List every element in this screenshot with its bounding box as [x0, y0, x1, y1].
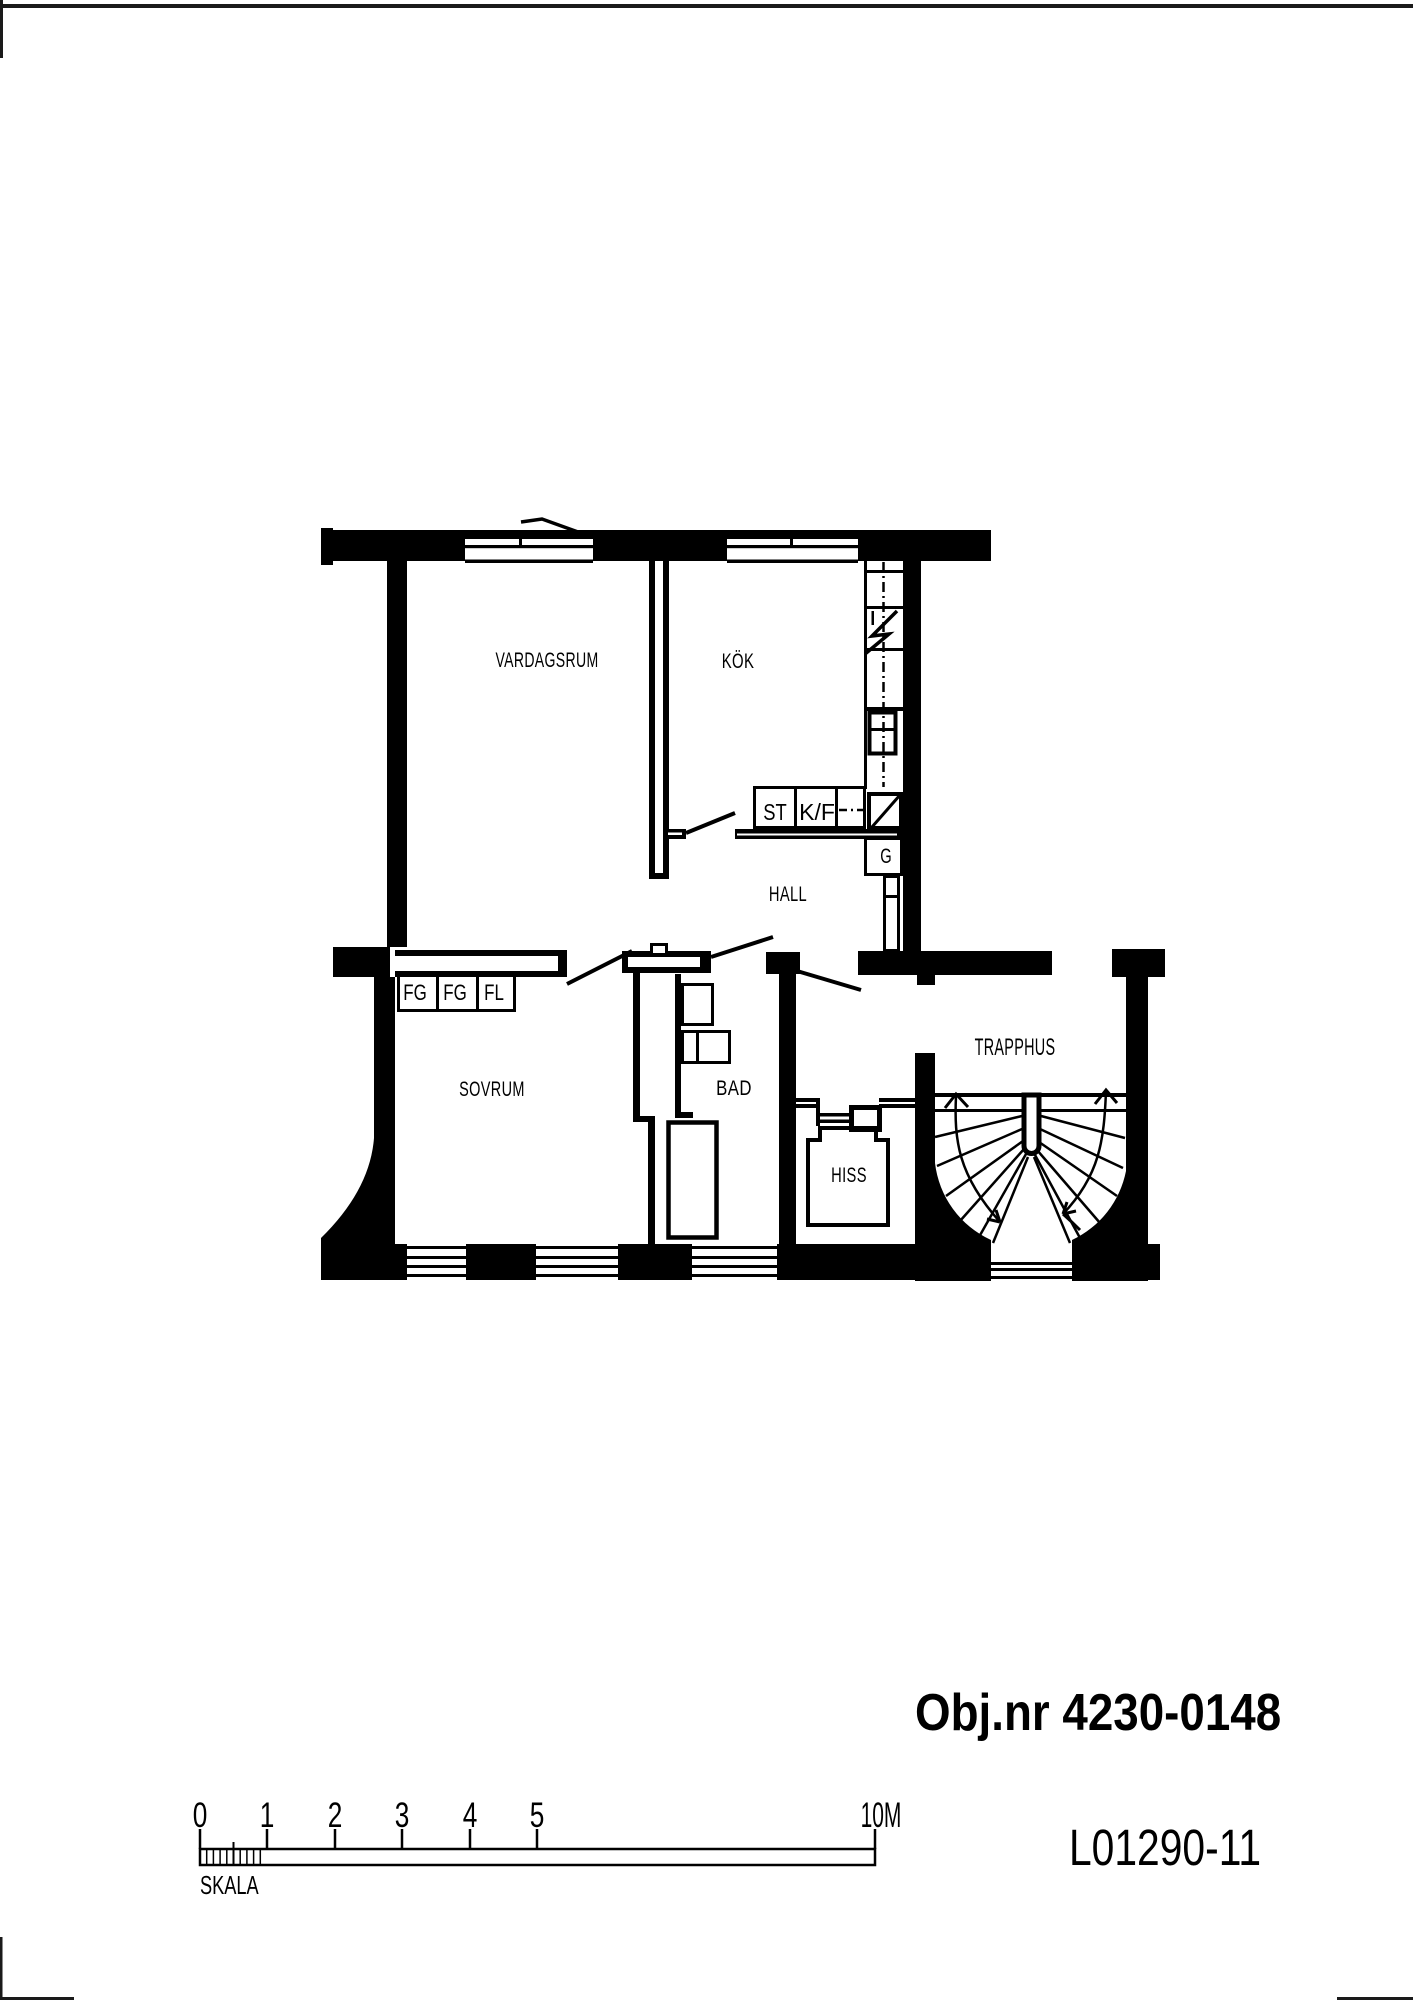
- svg-text:10M: 10M: [861, 1797, 902, 1836]
- svg-text:HALL: HALL: [769, 882, 807, 905]
- svg-text:K/F: K/F: [799, 799, 835, 825]
- svg-text:Obj.nr 4230-0148: Obj.nr 4230-0148: [915, 1684, 1281, 1741]
- svg-text:L01290-11: L01290-11: [1069, 1819, 1261, 1876]
- svg-text:5: 5: [530, 1795, 545, 1835]
- svg-text:SKALA: SKALA: [200, 1871, 259, 1900]
- svg-text:FL: FL: [484, 981, 504, 1006]
- svg-text:G: G: [880, 844, 891, 867]
- svg-text:FG: FG: [403, 981, 427, 1006]
- svg-text:FG: FG: [443, 981, 467, 1006]
- svg-text:TRAPPHUS: TRAPPHUS: [975, 1034, 1056, 1061]
- svg-text:SOVRUM: SOVRUM: [459, 1077, 525, 1100]
- svg-text:2: 2: [328, 1795, 343, 1835]
- svg-text:1: 1: [260, 1795, 275, 1835]
- svg-text:ST: ST: [763, 800, 787, 825]
- svg-text:BAD: BAD: [716, 1077, 752, 1100]
- svg-text:HISS: HISS: [831, 1163, 867, 1186]
- svg-text:3: 3: [395, 1795, 410, 1835]
- svg-text:4: 4: [463, 1795, 478, 1835]
- svg-text:0: 0: [193, 1795, 208, 1835]
- svg-text:KÖK: KÖK: [722, 650, 755, 673]
- svg-text:VARDAGSRUM: VARDAGSRUM: [495, 648, 598, 671]
